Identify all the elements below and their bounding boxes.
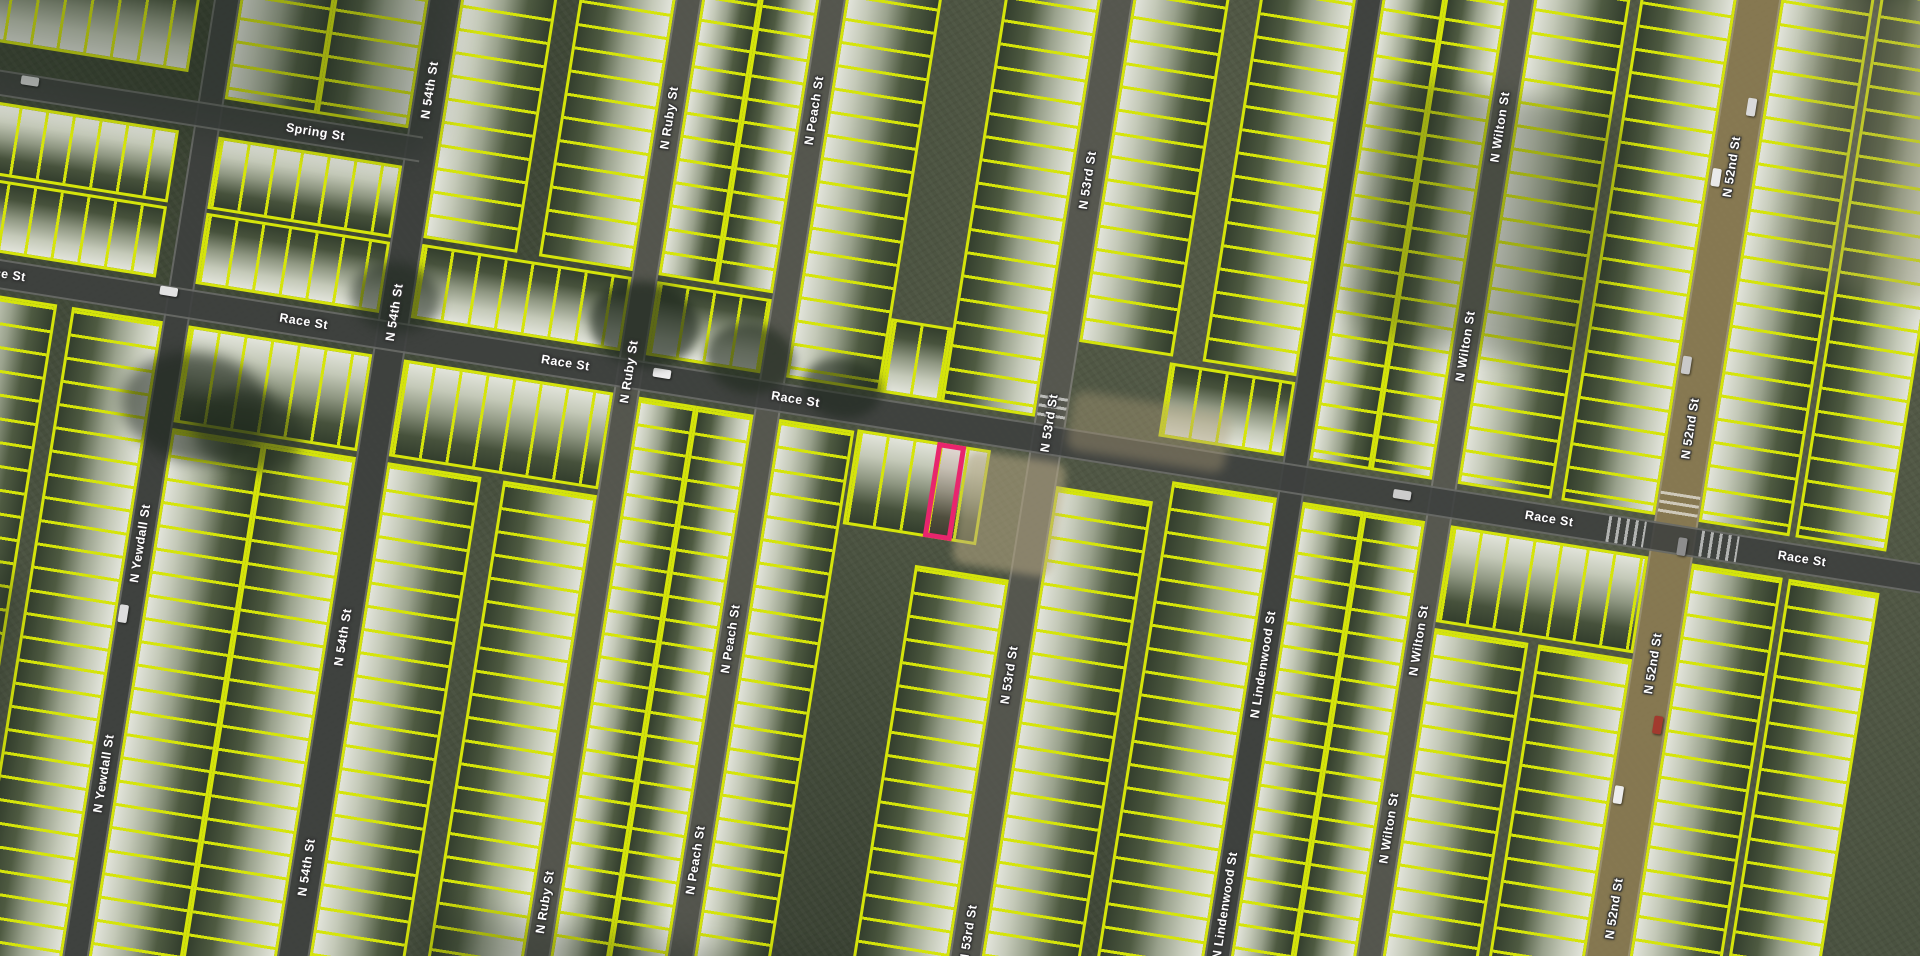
parcel-strip[interactable] xyxy=(880,318,953,402)
map-viewport[interactable]: N Yewdall StN Yewdall StN 54th StN 54th … xyxy=(0,0,1920,956)
satellite-map-canvas[interactable]: N Yewdall StN Yewdall StN 54th StN 54th … xyxy=(0,0,1920,956)
parcel-strip[interactable] xyxy=(843,429,991,545)
crosswalk-stripes xyxy=(1699,530,1741,562)
parcel-strip[interactable] xyxy=(0,0,203,72)
parcel-strip[interactable] xyxy=(646,281,772,373)
crosswalk-stripes xyxy=(1606,516,1648,548)
parcel-strip[interactable] xyxy=(1159,362,1296,456)
